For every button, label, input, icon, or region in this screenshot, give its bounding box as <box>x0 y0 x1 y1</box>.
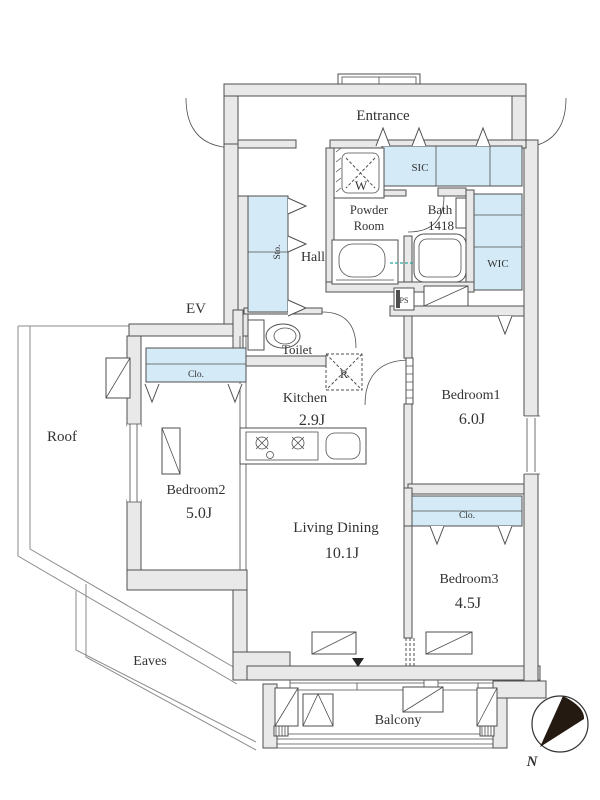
kitchen-counter <box>240 428 366 464</box>
powder-room-label-1: Powder <box>350 203 389 217</box>
north-label: N <box>526 754 539 770</box>
door-leaf-bedroom1 <box>406 358 413 404</box>
balcony-railing <box>277 734 493 748</box>
toilet-label: Toilet <box>282 342 313 357</box>
living-dining-label: Living Dining <box>293 520 379 536</box>
balcony-symbol-3 <box>403 687 443 712</box>
shutter-bedroom2-interior <box>162 428 180 474</box>
kitchen-area-label: 2.9J <box>299 412 325 429</box>
ps-label: PS <box>400 296 409 305</box>
kitchen-label: Kitchen <box>283 391 327 406</box>
refrigerator-label: R <box>340 367 348 381</box>
balcony-symbol-1 <box>275 688 298 726</box>
window-bedroom1 <box>522 416 540 474</box>
compass-icon: N <box>526 696 588 770</box>
powder-room-label-2: Room <box>354 219 385 233</box>
bedroom3-dotted-partition <box>406 638 414 668</box>
door-arc-toilet <box>322 312 356 348</box>
entrance-label: Entrance <box>356 108 410 124</box>
bedroom3-area-label: 4.5J <box>455 595 481 612</box>
wic-label: WIC <box>487 258 508 270</box>
ac-living-dining <box>312 632 356 654</box>
bedroom2-label: Bedroom2 <box>166 483 225 498</box>
storage-sic <box>382 146 522 186</box>
hall-label: Hall <box>301 250 325 265</box>
closet-bedroom2-label: Clo. <box>188 370 204 380</box>
balcony-symbol-4 <box>477 688 497 726</box>
storage-wic <box>474 194 522 290</box>
eaves-label: Eaves <box>133 654 166 669</box>
balcony-label: Balcony <box>375 713 422 728</box>
door-arc-bedroom1 <box>365 360 410 405</box>
ac-bedroom3 <box>426 632 472 654</box>
shutter-bedroom2-exterior <box>106 358 130 398</box>
bedroom3-label: Bedroom3 <box>439 572 498 587</box>
bedroom1-label: Bedroom1 <box>441 388 500 403</box>
sic-label: SIC <box>411 162 428 174</box>
shelf-bedroom1 <box>424 286 468 306</box>
window-bedroom2 <box>127 424 141 502</box>
bedroom1-area-label: 6.0J <box>459 411 485 428</box>
floorplan-page: N Entrance EV Hall SIC WIC W Sto. Powder… <box>0 0 600 800</box>
balcony-symbol-2 <box>303 694 333 726</box>
roof-label: Roof <box>47 429 77 445</box>
floorplan-svg: N Entrance EV Hall SIC WIC W Sto. Powder… <box>0 0 600 800</box>
bath-size-label: 1418 <box>428 218 454 233</box>
washer-label: W <box>355 178 368 193</box>
closet-bedroom3-label: Clo. <box>459 511 475 521</box>
sto-label: Sto. <box>273 244 283 259</box>
bedroom2-area-label: 5.0J <box>186 505 212 522</box>
bath-label: Bath <box>428 202 453 217</box>
living-dining-area-label: 10.1J <box>325 545 359 562</box>
ev-label: EV <box>186 301 206 317</box>
